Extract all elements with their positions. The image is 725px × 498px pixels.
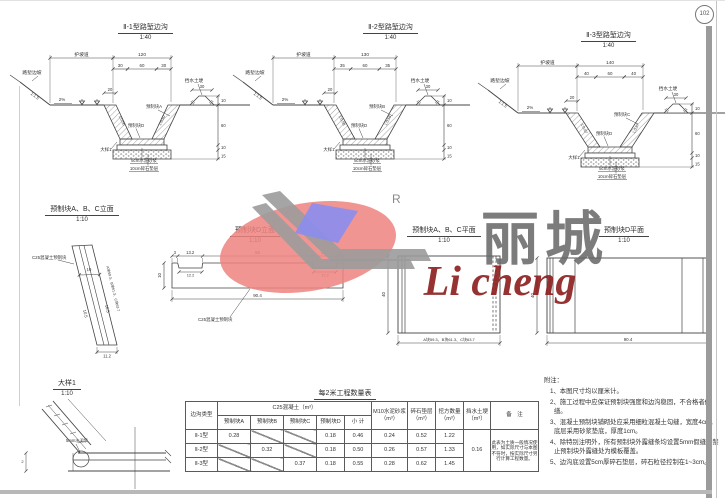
dim-label: 30: [200, 84, 205, 89]
dim-label: 预制块B: [369, 103, 385, 110]
dim-label: 预制块C: [614, 111, 630, 118]
cell-excav: 1.33: [436, 444, 464, 458]
cell-cushion: 0.57: [408, 444, 436, 458]
col-type-header: 边沟类型: [186, 402, 218, 430]
dim-label: 60: [140, 63, 145, 68]
dim-label: 10: [695, 106, 700, 111]
dim-label: 2%: [527, 105, 534, 110]
drawing-sheet: Ⅱ-1型路堑边沟 1:40 Ⅱ-2型路堑边沟 1:40 Ⅱ-3型路堑边沟 1:4…: [0, 0, 725, 498]
cell-d: 0.18: [317, 430, 345, 444]
dim-label: 20: [328, 87, 333, 92]
dim-label: 1:1.5: [498, 99, 509, 109]
note-item: 5、边沟底设置5cm厚碎石垫层，碎石粒径控制在1~3cm。: [544, 458, 722, 467]
dim-label: 2%: [282, 97, 289, 102]
detail1-scale: 1:10: [38, 390, 96, 397]
dim-label: 挡水土埂: [659, 85, 678, 92]
dim-label: 60: [221, 123, 226, 128]
elev-d-title-text: 预制块D立面: [230, 225, 280, 237]
dim-label: 140: [606, 60, 614, 66]
scan-edge-left: [19, 86, 20, 406]
note-item: 4、除特别注明外，所有预制块外露缝条均设置5mm假缝，禁止预制块外露缝处为模板覆…: [544, 438, 722, 457]
col-cushion-header: 碎石垫层 （m³）: [408, 402, 436, 430]
elev-d-scale: 1:10: [205, 237, 305, 244]
dim-label: 30: [118, 63, 123, 68]
dim-label: 预制块D: [596, 130, 612, 137]
dim-label: 路堑边坡: [22, 69, 41, 76]
scan-edge-right-line: [716, 1, 717, 498]
elev-abc-title-text: 预制块A、B、C立面: [45, 204, 118, 216]
dim-label: 13.2: [186, 250, 195, 255]
dim-label: 10: [221, 98, 226, 103]
col-excav-header: 挖方数量 （m³）: [436, 402, 464, 430]
table-row: Ⅱ-1型 0.28 0.18 0.46 0.24 0.52 1.22 0.16 …: [186, 430, 539, 444]
dim-label: 58: [255, 250, 260, 255]
detail1-title: 大样1 1:10: [38, 378, 96, 397]
scan-edge-bottom: [0, 490, 712, 494]
dim-label: 10cm碎石垫层: [353, 165, 382, 172]
dim-label: 护坡道: [74, 51, 89, 58]
section2-title: Ⅱ-2型路堑边沟 1:40: [338, 22, 443, 41]
col-bank-label: 挡水土埂: [464, 409, 490, 415]
cell-sum: 0.46: [345, 430, 372, 444]
dim-label: 3: [174, 250, 177, 255]
cell-bank-merged: 0.16: [464, 430, 491, 472]
dim-label: 30: [426, 84, 431, 89]
cell-m10: 0.24: [372, 430, 408, 444]
dim-label: 挡水土埂: [411, 77, 430, 84]
detail1-drawing: 25mm水泥浆: [18, 397, 183, 497]
col-excav-unit: （m³）: [436, 416, 463, 422]
slash-cell: [284, 444, 317, 458]
dim-label: 1:1.5: [30, 91, 41, 101]
col-bank-unit: （m³）: [464, 416, 490, 422]
section1-title: Ⅱ-1型路堑边沟 1:40: [93, 22, 198, 41]
dim-label: 大样1: [568, 154, 580, 161]
note-item: 3、混凝土预制块铺砌处应采用细粒混凝土勾缝，宽度4cm，底层采用砂浆垫底，厚度1…: [544, 418, 722, 437]
cell-type: Ⅱ-1型: [186, 430, 218, 444]
col-c25-group-header: C25混凝土（m³）: [218, 402, 372, 416]
elev-abc-title: 预制块A、B、C立面 1:10: [32, 204, 132, 223]
dim-label: 120: [138, 52, 146, 58]
dim-label: 12.2: [321, 273, 329, 278]
col-remark-header: 备 注: [491, 402, 539, 430]
cell-sum: 0.55: [345, 458, 372, 472]
cell-excav: 1.45: [436, 458, 464, 472]
dim-label: 预制块D: [351, 122, 367, 129]
dim-label: 大样1: [323, 146, 335, 153]
plan-d-title-text: 预制块D平面: [599, 225, 649, 237]
dim-label: 13.2: [321, 250, 330, 255]
dim-label: 挡水土埂: [185, 77, 204, 84]
slash-cell: [218, 444, 251, 458]
dim-label: 10cm碎石垫层: [598, 173, 627, 180]
elev-abc-scale: 1:10: [32, 216, 132, 223]
note-item: 2、施工过程中应保证预制块强度和边沟稳固，不合格者修缮。: [544, 398, 722, 417]
elev-d-drawing: 313.25813.2312.212.221090.4C25混凝土预制块: [150, 249, 365, 341]
slash-cell: [284, 430, 317, 444]
dim-label: 20: [570, 95, 575, 100]
dim-label: 40: [381, 292, 386, 297]
dim-label: 10: [157, 273, 162, 278]
note-item: 1、本图尺寸均以厘米计。: [544, 387, 722, 396]
dim-label: 预制块D: [128, 122, 144, 129]
cell-m10: 0.28: [372, 458, 408, 472]
cell-type: Ⅱ-2型: [186, 444, 218, 458]
dim-label: 15: [695, 162, 700, 167]
table-title: 每2米工程数量表: [280, 388, 410, 400]
section2-scale: 1:40: [338, 34, 443, 41]
col-cushion-unit: （m³）: [408, 416, 435, 422]
dim-label: 5cm水泥砂浆: [131, 157, 157, 164]
dim-label: 5cm水泥砂浆: [599, 165, 625, 172]
dim-label: 12.2: [187, 273, 195, 278]
dim-label: 大样1: [100, 146, 112, 153]
dim-label: 90.4: [624, 337, 633, 342]
plan-d-drawing: 4090.4: [528, 239, 725, 351]
dim-label: 1:1.5: [253, 91, 264, 101]
cell-b: 0.32: [251, 444, 284, 458]
notes-title: 附注：: [544, 376, 722, 385]
sub-block-d: 预制块D: [317, 416, 345, 430]
plan-d-title: 预制块D平面 1:10: [574, 225, 674, 244]
plan-abc-title-text: 预制块A、B、C平面: [407, 225, 480, 237]
cell-d: 0.18: [317, 458, 345, 472]
scan-edge-right: [706, 26, 712, 498]
section3-title: Ⅱ-3型路堑边沟 1:40: [556, 30, 661, 49]
slash-cell: [218, 458, 251, 472]
section1-title-text: Ⅱ-1型路堑边沟: [118, 22, 173, 34]
col-bank-header: 挡水土埂 （m³）: [464, 402, 491, 430]
cell-a: 0.28: [218, 430, 251, 444]
cell-cushion: 0.52: [408, 430, 436, 444]
detail1-title-text: 大样1: [53, 378, 81, 390]
dim-label: 60: [695, 131, 700, 136]
notes-block: 附注： 1、本图尺寸均以厘米计。 2、施工过程中应保证预制块强度和边沟稳固，不合…: [544, 376, 722, 468]
dim-label: 2%: [59, 97, 66, 102]
cell-cushion: 0.62: [408, 458, 436, 472]
plan-abc-title: 预制块A、B、C平面 1:10: [394, 225, 494, 244]
dim-label: 护坡道: [540, 59, 555, 66]
dim-label: 路堑边坡: [245, 69, 264, 76]
sub-block-a: 预制块A: [218, 416, 251, 430]
dim-label: 20: [108, 87, 113, 92]
dim-label: 130: [361, 52, 369, 58]
section3-title-text: Ⅱ-3型路堑边沟: [581, 30, 636, 42]
dim-label: 15: [221, 154, 226, 159]
dim-label: 35: [340, 63, 345, 68]
dim-label: 35: [385, 63, 390, 68]
dim-label: 90.4: [253, 293, 262, 298]
sheet-number-badge: 102: [695, 5, 714, 24]
dim-label: 30: [161, 63, 166, 68]
table-header-row1: 边沟类型 C25混凝土（m³） M10水泥砂浆 （m³） 碎石垫层 （m³） 挖…: [186, 402, 539, 416]
plan-abc-scale: 1:10: [394, 237, 494, 244]
table-title-text: 每2米工程数量表: [314, 388, 377, 400]
cell-sum: 0.50: [345, 444, 372, 458]
col-m10-label: M10水泥砂浆: [372, 409, 407, 415]
cell-c: 0.37: [284, 458, 317, 472]
dim-label: 护坡道: [296, 51, 311, 58]
dim-label: 路堑边坡: [490, 77, 509, 84]
section1-scale: 1:40: [93, 34, 198, 41]
dim-label: 10: [447, 98, 452, 103]
dim-label: 预制块A: [146, 103, 162, 110]
dim-label: 5mm水泥浆: [66, 437, 89, 444]
dim-label: 40: [584, 71, 589, 76]
dim-label: A块59.3、B块61.3、C块63.7: [423, 336, 475, 342]
dim-label: 60: [447, 123, 452, 128]
dim-label: 60: [608, 71, 613, 76]
cell-excav: 1.22: [436, 430, 464, 444]
dim-label: 10: [86, 267, 92, 272]
slash-cell: [251, 458, 284, 472]
section2-title-text: Ⅱ-2型路堑边沟: [363, 22, 418, 34]
dim-label: 2: [21, 459, 24, 464]
cell-remark-merged: 此表为土质一般情况使用，如实际尺寸与本图不符时，按实际尺寸另行计算工程数量。: [491, 430, 539, 472]
dim-label: 10.5: [82, 309, 89, 319]
dim-label: 3: [339, 250, 342, 255]
dim-label: 10: [221, 145, 226, 150]
dim-label: 10: [447, 145, 452, 150]
cell-type: Ⅱ-3型: [186, 458, 218, 472]
plan-d-scale: 1:10: [574, 237, 674, 244]
cell-d: 0.18: [317, 444, 345, 458]
dim-label: 10cm碎石垫层: [130, 165, 159, 172]
slash-cell: [251, 430, 284, 444]
dim-label: C25混凝土预制块: [32, 254, 67, 261]
dim-label: 40: [631, 71, 636, 76]
dim-label: 60: [363, 63, 368, 68]
elev-d-title: 预制块D立面 1:10: [205, 225, 305, 244]
dim-label: 40: [530, 293, 535, 298]
sub-block-b: 预制块B: [251, 416, 284, 430]
dim-label: 2: [306, 259, 308, 263]
col-m10-unit: （m³）: [372, 416, 407, 422]
dim-label: C25混凝土预制块: [198, 316, 233, 323]
dim-label: 15: [447, 154, 452, 159]
col-excav-label: 挖方数量: [436, 409, 463, 415]
dim-label: 5cm水泥砂浆: [354, 157, 380, 164]
sub-subtotal: 小 计: [345, 416, 372, 430]
col-m10-header: M10水泥砂浆 （m³）: [372, 402, 408, 430]
dim-label: 30: [674, 92, 679, 97]
section3-scale: 1:40: [556, 42, 661, 49]
dim-label: 10: [695, 153, 700, 158]
cell-m10: 0.26: [372, 444, 408, 458]
plan-abc-drawing: 40A块59.3、B块61.3、C块63.7: [378, 239, 513, 351]
quantity-table: 边沟类型 C25混凝土（m³） M10水泥砂浆 （m³） 碎石垫层 （m³） 挖…: [185, 401, 539, 472]
col-cushion-label: 碎石垫层: [408, 409, 435, 415]
sub-block-c: 预制块C: [284, 416, 317, 430]
dim-label: 11.2: [103, 354, 112, 359]
